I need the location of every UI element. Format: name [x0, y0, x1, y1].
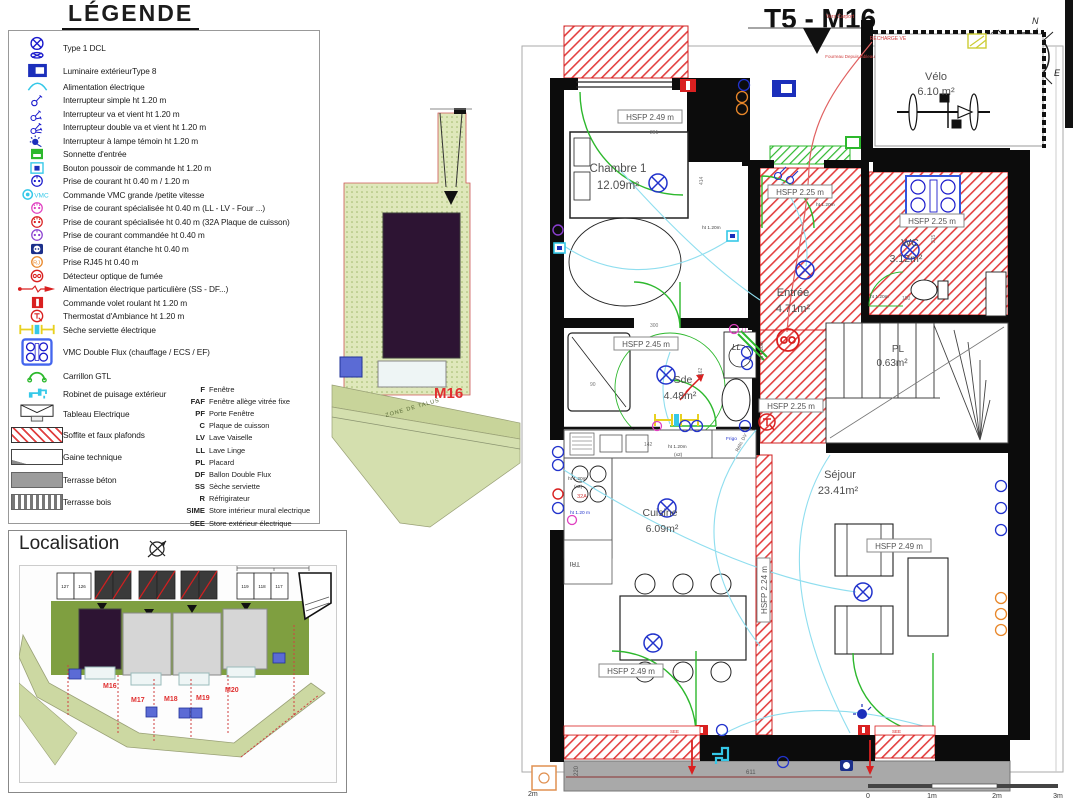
- abbreviation-code: C: [179, 421, 205, 430]
- svg-text:M18: M18: [164, 696, 178, 703]
- legend-item: VMC Double Flux (chauffage / ECS / EF): [11, 337, 317, 367]
- legend-item-label: Bouton poussoir de commande ht 1.20 m: [63, 163, 211, 173]
- prise-icon: [11, 174, 63, 188]
- svg-text:ht 1.20m: ht 1.20m: [816, 202, 835, 208]
- int4-icon: [11, 134, 63, 148]
- abbreviation-item: PF Porte Fenêtre: [179, 407, 319, 419]
- svg-text:1m: 1m: [927, 793, 937, 800]
- fourreau-label: Fourreau Depuis tableau: [825, 54, 875, 59]
- prisell-icon: [11, 201, 63, 215]
- room-wc: WC: [901, 237, 919, 249]
- legend-item-label: Prise de courant commandée ht 0.40 m: [63, 230, 205, 240]
- abbreviation-label: Lave Linge: [209, 446, 245, 455]
- tableau-icon: [11, 404, 63, 423]
- svg-text:(x2): (x2): [574, 484, 583, 490]
- abbreviation-label: Ballon Double Flux: [209, 470, 271, 479]
- dim-611: 611: [746, 770, 756, 776]
- dcl-icon: [11, 36, 63, 60]
- house-terrace: [378, 361, 446, 387]
- svg-text:M20: M20: [225, 687, 239, 694]
- legend-item: RJ Prise RJ45 ht 0.40 m: [11, 256, 317, 270]
- see-label-right: SEE: [892, 729, 901, 734]
- svg-text:12.09m²: 12.09m²: [597, 180, 639, 192]
- robinet-icon: [11, 385, 63, 403]
- room-sejour: Séjour: [824, 469, 856, 481]
- site-plan: M16 ZONE DE TALUS: [330, 95, 525, 535]
- svg-text:RJ: RJ: [33, 261, 40, 267]
- doorbell-icon: [846, 137, 860, 148]
- legend-item: Carrillon GTL: [11, 367, 317, 385]
- room-pl: PL: [892, 344, 905, 355]
- legend-item: Type 1 DCL: [11, 35, 317, 61]
- gaine-icon: [11, 449, 63, 465]
- svg-text:ht 1.20m: ht 1.20m: [870, 294, 889, 300]
- svg-text:M16: M16: [103, 683, 117, 690]
- abbreviation-code: R: [179, 494, 205, 503]
- legend-item: Prise de courant spécialisée ht 0.40 m (…: [11, 215, 317, 229]
- beton-icon: [11, 472, 63, 488]
- prisecmd-icon: [11, 228, 63, 242]
- svg-text:ht 1.20 m: ht 1.20 m: [570, 510, 590, 516]
- svg-text:ht 1.20m: ht 1.20m: [702, 225, 721, 231]
- abbreviation-item: SS Sèche serviette: [179, 481, 319, 493]
- abbreviation-code: DF: [179, 470, 205, 479]
- legend-item-label: Interrupteur va et vient ht 1.20 m: [63, 109, 180, 119]
- abbreviation-code: SS: [179, 482, 205, 491]
- svg-text:HSFP 2.25 m: HSFP 2.25 m: [767, 402, 815, 411]
- legend-item-label: Carrillon GTL: [63, 371, 111, 381]
- svg-text:HSFP 2.25 m: HSFP 2.25 m: [908, 217, 956, 226]
- floor-plan: T5 - M16 N O E S 611 220: [520, 0, 1073, 800]
- legend-item-label: Type 1 DCL: [63, 43, 106, 53]
- abbreviation-label: Placard: [209, 458, 234, 467]
- abbreviation-item: FAF Fenêtre allège vitrée fixe: [179, 395, 319, 407]
- legend-item-label: Interrupteur double va et vient ht 1.20 …: [63, 122, 206, 132]
- legend-item: Interrupteur double va et vient ht 1.20 …: [11, 121, 317, 135]
- room-velo: Vélo: [925, 71, 947, 83]
- legend-item: Détecteur optique de fumée: [11, 269, 317, 283]
- svg-text:414: 414: [699, 176, 705, 185]
- svg-text:118: 118: [258, 584, 266, 589]
- do-icon: [11, 269, 63, 283]
- alim-icon: [11, 81, 63, 92]
- legend-item: Prise de courant étanche ht 0.40 m: [11, 242, 317, 256]
- svg-text:6.10 m²: 6.10 m²: [917, 86, 955, 98]
- svg-text:ht 1.20m: ht 1.20m: [568, 476, 587, 482]
- abbreviation-code: FAF: [179, 397, 205, 406]
- recharge-ve-label: RECHARGE VE: [870, 36, 907, 42]
- svg-text:M17: M17: [131, 697, 145, 704]
- legend-item-label: VMC Double Flux (chauffage / ECS / EF): [63, 347, 210, 357]
- abbreviation-label: Lave Vaiselle: [209, 433, 252, 442]
- svg-text:HSFP 2.45 m: HSFP 2.45 m: [622, 340, 670, 349]
- svg-text:0: 0: [866, 793, 870, 800]
- legend-item-label: Gaine technique: [63, 452, 122, 462]
- legend-item: Alimentation électrique: [11, 80, 317, 94]
- legend-item-label: Interrupteur simple ht 1.20 m: [63, 95, 166, 105]
- abbreviation-code: F: [179, 385, 205, 394]
- legend-item-label: Terrasse béton: [63, 475, 116, 485]
- legend-item: Prise de courant ht 0.40 m / 1.20 m: [11, 175, 317, 189]
- legend-item: Prise de courant commandée ht 0.40 m: [11, 229, 317, 243]
- abbreviation-code: LL: [179, 446, 205, 455]
- legend-item: Alimentation électrique particulière (SS…: [11, 283, 317, 297]
- legend-item-label: Commande volet roulant ht 1.20 m: [63, 298, 187, 308]
- legend-item: Sèche serviette électrique: [11, 323, 317, 337]
- svg-text:2m: 2m: [992, 793, 1002, 800]
- abbreviation-code: PL: [179, 458, 205, 467]
- localisation-map: 127 126 119 118 117: [19, 565, 337, 783]
- compass-n: N: [1032, 16, 1039, 26]
- legend-item-label: Interrupteur à lampe témoin ht 1.20 m: [63, 136, 198, 146]
- sonnette-icon: [11, 148, 63, 160]
- svg-text:HSFP 2.24 m: HSFP 2.24 m: [760, 566, 769, 614]
- legend-item: Luminaire extérieurType 8: [11, 61, 317, 80]
- abbreviation-label: Porte Fenêtre: [209, 409, 254, 418]
- legend-item-label: Prise de courant ht 0.40 m / 1.20 m: [63, 176, 189, 186]
- abbreviation-item: F Fenêtre: [179, 383, 319, 395]
- legend-item: Commande volet roulant ht 1.20 m: [11, 296, 317, 310]
- svg-text:HSFP 2.49 m: HSFP 2.49 m: [607, 667, 655, 676]
- frigo-label: Frigo: [726, 436, 737, 442]
- compass-e: E: [1054, 68, 1061, 78]
- exterior-marker: [532, 766, 556, 790]
- abbreviation-label: Plaque de cuisson: [209, 421, 269, 430]
- svg-text:ht 1.20m: ht 1.20m: [668, 444, 687, 450]
- label-32a: 32A: [577, 494, 587, 500]
- velo-room: [873, 32, 1044, 148]
- svg-text:162: 162: [698, 367, 704, 376]
- legend-item: Sonnette d'entrée: [11, 148, 317, 162]
- carillon-icon: [11, 368, 63, 383]
- svg-text:HSFP 2.49 m: HSFP 2.49 m: [626, 113, 674, 122]
- volet-icon: [11, 296, 63, 309]
- scale-left-label: 2m: [528, 791, 538, 798]
- legend-item-label: Prise RJ45 ht 0.40 m: [63, 257, 138, 267]
- legend-item: Thermostat d'Ambiance ht 1.20 m: [11, 310, 317, 324]
- abbreviation-item: PL Placard: [179, 456, 319, 468]
- tri-label: TRI: [569, 560, 580, 567]
- plan-sheet: LÉGENDE Type 1 DCL Luminaire extérieurTy…: [0, 0, 1073, 800]
- legend-item-label: Sonnette d'entrée: [63, 149, 127, 159]
- abbreviation-item: C Plaque de cuisson: [179, 420, 319, 432]
- ll-socket-label: LL: [742, 328, 748, 334]
- parking-marker: [340, 357, 362, 377]
- vmc-icon: VMC: [11, 188, 63, 201]
- vmcdf-icon: [11, 338, 63, 366]
- legend-item-label: Luminaire extérieurType 8: [63, 66, 156, 76]
- rj45-icon: RJ: [11, 255, 63, 269]
- prise32-icon: [11, 215, 63, 229]
- abbreviation-label: Store extérieur électrique: [209, 519, 292, 528]
- room-cuisine: Cuisine: [642, 507, 677, 519]
- room-entree: Entrée: [777, 287, 809, 299]
- svg-text:HSFP 2.25 m: HSFP 2.25 m: [776, 188, 824, 197]
- witness-switch-icon: [857, 709, 867, 719]
- svg-text:6.09m²: 6.09m²: [646, 523, 679, 535]
- svg-text:126: 126: [78, 584, 86, 589]
- legend-item-label: Détecteur optique de fumée: [63, 271, 163, 281]
- abbreviation-item: DF Ballon Double Flux: [179, 468, 319, 480]
- abbreviation-code: PF: [179, 409, 205, 418]
- legend-item: Interrupteur à lampe témoin ht 1.20 m: [11, 134, 317, 148]
- abbreviation-item: R Réfrigirateur: [179, 493, 319, 505]
- legend-item: Prise de courant spécialisée ht 0.40 m (…: [11, 202, 317, 216]
- legend-item-label: Alimentation électrique: [63, 82, 145, 92]
- legend-item-label: Terrasse bois: [63, 497, 111, 507]
- svg-text:VMC: VMC: [34, 193, 49, 200]
- lum-icon: [11, 63, 63, 78]
- svg-text:ht 1.20m: ht 1.20m: [759, 341, 765, 360]
- dim-220: 220: [574, 765, 580, 776]
- bouton-icon: [11, 162, 63, 174]
- svg-text:215: 215: [931, 234, 937, 243]
- legend-item-label: Tableau Electrique: [63, 409, 129, 419]
- abbreviation-label: Fenêtre allège vitrée fixe: [209, 397, 290, 406]
- svg-text:117: 117: [275, 584, 283, 589]
- legend-title: LÉGENDE: [62, 0, 199, 30]
- room-chambre: Chambre 1: [590, 163, 647, 175]
- abbreviation-item: SIME Store intérieur mural electrique: [179, 505, 319, 517]
- svg-text:127: 127: [61, 584, 69, 589]
- abbreviation-label: Fenêtre: [209, 385, 234, 394]
- svg-text:119: 119: [241, 584, 249, 589]
- abbreviation-item: SEE Store extérieur électrique: [179, 517, 319, 529]
- north-compass-icon: [144, 535, 170, 561]
- legend-item-label: Prise de courant spécialisée ht 0.40 m (…: [63, 203, 265, 213]
- svg-text:291: 291: [650, 130, 659, 136]
- vers-carport-label: Vers Carport: [826, 14, 855, 20]
- legend-item: VMC Commande VMC grande /petite vitesse: [11, 188, 317, 202]
- svg-text:300: 300: [650, 323, 659, 329]
- abbreviation-list: F Fenêtre FAF Fenêtre allège vitrée fixe…: [179, 383, 319, 541]
- abbreviation-code: SIME: [179, 506, 205, 515]
- svg-text:150: 150: [902, 296, 911, 302]
- legend-item-label: Commande VMC grande /petite vitesse: [63, 190, 204, 200]
- abbreviation-label: Réfrigirateur: [209, 494, 250, 503]
- see-label-left: SEE: [670, 729, 679, 734]
- room-sde: Sde: [674, 374, 693, 386]
- localisation-title: Localisation: [19, 533, 119, 555]
- soffite-icon: [11, 427, 63, 443]
- legend-item-label: Soffite et faux plafonds: [63, 430, 145, 440]
- svg-text:3.12m²: 3.12m²: [890, 253, 923, 265]
- svg-text:(x2): (x2): [674, 452, 683, 458]
- svg-text:23.41m²: 23.41m²: [818, 485, 859, 497]
- svg-text:142: 142: [644, 442, 653, 448]
- house-m16: [383, 213, 460, 358]
- legend-item-label: Prise de courant spécialisée ht 0.40 m (…: [63, 217, 290, 227]
- legend-item: Bouton poussoir de commande ht 1.20 m: [11, 161, 317, 175]
- priseet-icon: [11, 243, 63, 255]
- alimp-icon: [11, 284, 63, 294]
- seche-icon: [11, 323, 63, 336]
- ll-abbrev-label: LL: [732, 343, 741, 352]
- svg-text:3m: 3m: [1053, 793, 1063, 800]
- legend-item-label: Alimentation électrique particulière (SS…: [63, 284, 228, 294]
- abbreviation-label: Store intérieur mural electrique: [209, 506, 310, 515]
- legend-item-label: Sèche serviette électrique: [63, 325, 156, 335]
- svg-text:4.71m²: 4.71m²: [776, 303, 811, 315]
- page-edge: [1065, 0, 1073, 128]
- localisation-panel: Localisation 127: [8, 530, 347, 793]
- svg-text:4.48m²: 4.48m²: [664, 390, 697, 402]
- staircase: [826, 323, 1008, 443]
- building-m16: [79, 609, 121, 669]
- svg-text:0.63m²: 0.63m²: [876, 358, 908, 369]
- abbreviation-code: SEE: [179, 519, 205, 528]
- legend-item-label: Prise de courant étanche ht 0.40 m: [63, 244, 189, 254]
- buildings: [123, 609, 267, 675]
- abbreviation-label: Sèche serviette: [209, 482, 260, 491]
- abbreviation-item: LV Lave Vaiselle: [179, 432, 319, 444]
- svg-text:HSFP 2.49 m: HSFP 2.49 m: [875, 542, 923, 551]
- legend-item-label: Thermostat d'Ambiance ht 1.20 m: [63, 311, 184, 321]
- legend-item-label: Robinet de puisage extérieur: [63, 389, 166, 399]
- thermo-icon: [11, 309, 63, 323]
- svg-text:90: 90: [590, 382, 596, 388]
- bois-icon: [11, 494, 63, 510]
- abbreviation-item: LL Lave Linge: [179, 444, 319, 456]
- svg-text:M19: M19: [196, 695, 210, 702]
- legend-box: Type 1 DCL Luminaire extérieurType 8 Ali…: [8, 30, 320, 524]
- abbreviation-code: LV: [179, 433, 205, 442]
